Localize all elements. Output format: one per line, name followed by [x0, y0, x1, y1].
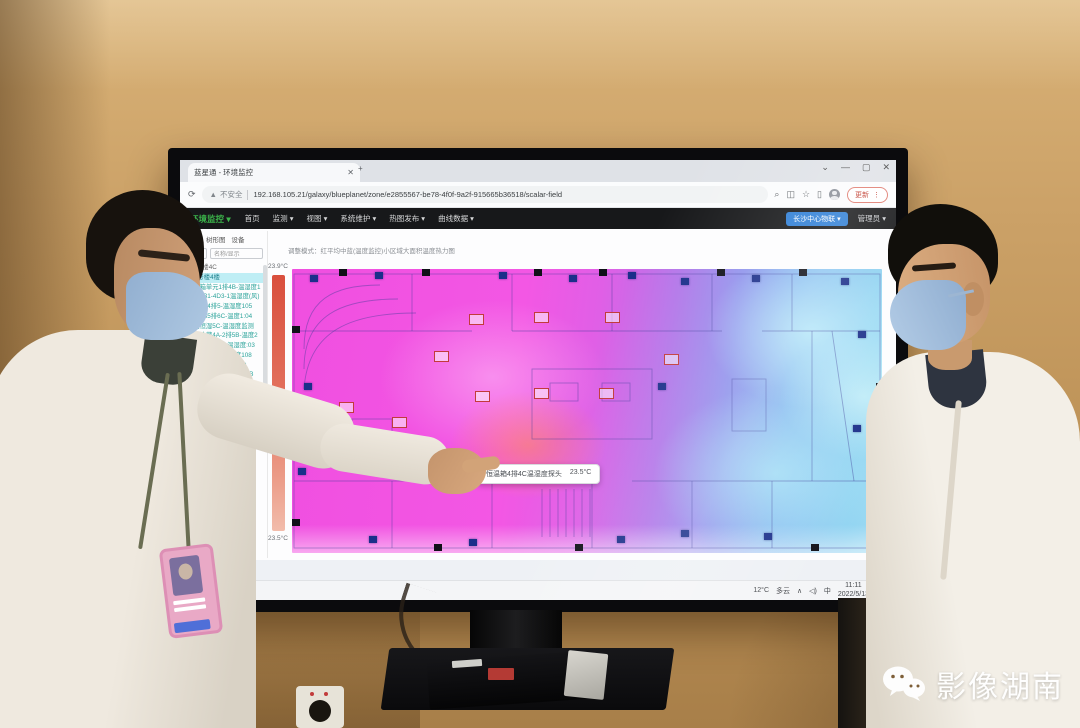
- minimize-button[interactable]: —: [841, 162, 850, 173]
- url-text: 192.168.105.21/galaxy/blueplanet/zone/e2…: [253, 190, 562, 199]
- sensor-node-marker[interactable]: [569, 275, 577, 282]
- heatmap-header: 调整模式：红平均中蓝(温度监控)小区域大面积温度热力图: [288, 245, 455, 255]
- nav-menu-item[interactable]: 热图发布 ▾: [389, 213, 425, 224]
- device-label-box[interactable]: [475, 391, 490, 402]
- nav-menu-list: 首页监测 ▾视图 ▾系统维护 ▾热图发布 ▾曲线数据 ▾: [245, 213, 474, 224]
- nav-menu-item[interactable]: 视图 ▾: [307, 213, 328, 224]
- sensor-node-marker[interactable]: [681, 530, 689, 537]
- photo-scene: 蓝星通 - 环境监控 ✕ + ⌄ — ▢ ✕ ⟳ ▲ 不安全 192.168.1…: [0, 0, 1080, 728]
- browser-toolbar: ⟳ ▲ 不安全 192.168.105.21/galaxy/blueplanet…: [180, 182, 896, 208]
- structural-pillar: [575, 544, 583, 551]
- temperature-heatmap[interactable]: 恒温箱4排4C温湿度探头 23.5°C: [292, 269, 882, 553]
- sensor-node-marker[interactable]: [853, 425, 861, 432]
- sidebar-search-input[interactable]: 名称/显示: [210, 248, 263, 259]
- bookmark-star-icon[interactable]: ☆: [802, 189, 810, 200]
- nav-menu-item[interactable]: 监测 ▾: [273, 213, 294, 224]
- right-person-face-mask: [890, 280, 966, 350]
- structural-pillar: [292, 326, 300, 333]
- refresh-icon[interactable]: ⟳: [188, 189, 196, 200]
- sidebar-tab[interactable]: 树形图: [206, 234, 226, 244]
- chrome-update-button[interactable]: 更新 ⋮: [847, 187, 888, 203]
- sensor-node-marker[interactable]: [658, 383, 666, 390]
- address-separator: [247, 190, 248, 200]
- update-label: 更新: [855, 190, 869, 200]
- close-button[interactable]: ✕: [882, 162, 890, 173]
- sensor-node-marker[interactable]: [298, 468, 306, 475]
- tab-title: 蓝星通 - 环境监控: [194, 167, 342, 178]
- profile-avatar[interactable]: [829, 189, 840, 200]
- tooltip-label: 恒温箱4排4C温湿度探头: [486, 469, 562, 479]
- clock-date: 2022/5/13: [838, 591, 869, 598]
- sensor-node-marker[interactable]: [617, 536, 625, 543]
- browser-tab[interactable]: 蓝星通 - 环境监控 ✕: [188, 163, 360, 182]
- structural-pillar: [799, 269, 807, 276]
- watermark: 影像湖南: [882, 662, 1064, 706]
- sensor-node-marker[interactable]: [681, 278, 689, 285]
- scale-min-label: 23.5°C: [268, 535, 288, 542]
- device-label-box[interactable]: [534, 312, 549, 323]
- maximize-button[interactable]: ▢: [862, 162, 871, 173]
- side-panel-icon[interactable]: ▯: [817, 189, 822, 200]
- structural-pillar: [434, 544, 442, 551]
- device-label-box[interactable]: [599, 388, 614, 399]
- structural-pillar: [534, 269, 542, 276]
- device-red-label: [488, 668, 514, 680]
- sensor-node-marker[interactable]: [375, 272, 383, 279]
- taskbar-clock[interactable]: 11:11 2022/5/13: [838, 582, 869, 598]
- ime-indicator[interactable]: 中: [824, 586, 831, 596]
- tooltip-value: 23.5°C: [570, 469, 591, 479]
- tray-chevron-icon[interactable]: ∧: [797, 587, 802, 595]
- structural-pillar: [422, 269, 430, 276]
- sensor-node-marker[interactable]: [752, 275, 760, 282]
- search-icon[interactable]: ⌕: [774, 189, 779, 200]
- shelf-card: [564, 650, 609, 700]
- new-tab-button[interactable]: +: [358, 164, 363, 173]
- sensor-node-marker[interactable]: [304, 383, 312, 390]
- device-label-box[interactable]: [434, 351, 449, 362]
- site-selector-button[interactable]: 长沙中心物联 ▾: [786, 212, 847, 226]
- structural-pillar: [717, 269, 725, 276]
- floorplan-drawing: [292, 269, 882, 553]
- sensor-node-marker[interactable]: [858, 331, 866, 338]
- sensor-node-marker[interactable]: [764, 533, 772, 540]
- not-secure-label: 不安全: [220, 189, 243, 200]
- left-person-face-mask: [126, 272, 208, 340]
- left-person-id-badge: [159, 543, 224, 639]
- weather-temp[interactable]: 12°C: [753, 587, 769, 594]
- structural-pillar: [292, 519, 300, 526]
- nav-menu-item[interactable]: 首页: [245, 213, 260, 224]
- wall-outlet: [296, 686, 344, 728]
- device-label-box[interactable]: [534, 388, 549, 399]
- sensor-node-marker[interactable]: [499, 272, 507, 279]
- structural-pillar: [339, 269, 347, 276]
- sidebar-tab[interactable]: 设备: [232, 234, 245, 244]
- structural-pillar: [811, 544, 819, 551]
- sensor-node-marker[interactable]: [628, 272, 636, 279]
- tab-search-icon[interactable]: ⌄: [821, 162, 829, 173]
- nav-menu-item[interactable]: 曲线数据 ▾: [438, 213, 474, 224]
- device-label-box[interactable]: [605, 312, 620, 323]
- not-secure-icon: ▲: [210, 190, 217, 199]
- tv-screen: 蓝星通 - 环境监控 ✕ + ⌄ — ▢ ✕ ⟳ ▲ 不安全 192.168.1…: [180, 160, 896, 600]
- menu-kebab-icon[interactable]: ⋮: [873, 191, 880, 199]
- structural-pillar: [599, 269, 607, 276]
- weather-desc[interactable]: 多云: [776, 586, 790, 596]
- wall-top-shading: [0, 0, 1080, 90]
- scale-max-label: 23.9°C: [268, 263, 288, 270]
- sensor-node-marker[interactable]: [310, 275, 318, 282]
- windows-taskbar: 12°C 多云 ∧ ◁) 中 11:11 2022/5/13 1: [180, 580, 896, 600]
- sensor-node-marker[interactable]: [369, 536, 377, 543]
- volume-icon[interactable]: ◁): [809, 587, 817, 595]
- clock-time: 11:11: [845, 582, 861, 589]
- browser-tabstrip: 蓝星通 - 环境监控 ✕ + ⌄ — ▢ ✕: [180, 160, 896, 182]
- device-label-box[interactable]: [392, 417, 407, 428]
- watermark-text: 影像湖南: [936, 662, 1064, 706]
- address-bar[interactable]: ▲ 不安全 192.168.105.21/galaxy/blueplanet/z…: [202, 186, 769, 203]
- wechat-icon: [882, 666, 926, 702]
- device-label-box[interactable]: [664, 354, 679, 365]
- device-label-box[interactable]: [469, 314, 484, 325]
- nav-menu-item[interactable]: 系统维护 ▾: [340, 213, 376, 224]
- user-menu[interactable]: 管理员 ▾: [858, 213, 886, 224]
- extensions-icon[interactable]: ◫: [786, 189, 795, 200]
- app-navbar: 环境监控 ▾ 首页监测 ▾视图 ▾系统维护 ▾热图发布 ▾曲线数据 ▾ 长沙中心…: [180, 208, 896, 229]
- sensor-node-marker[interactable]: [841, 278, 849, 285]
- sensor-node-marker[interactable]: [469, 539, 477, 546]
- sidebar-scrollbar[interactable]: [263, 265, 267, 385]
- tab-close-icon[interactable]: ✕: [347, 168, 354, 177]
